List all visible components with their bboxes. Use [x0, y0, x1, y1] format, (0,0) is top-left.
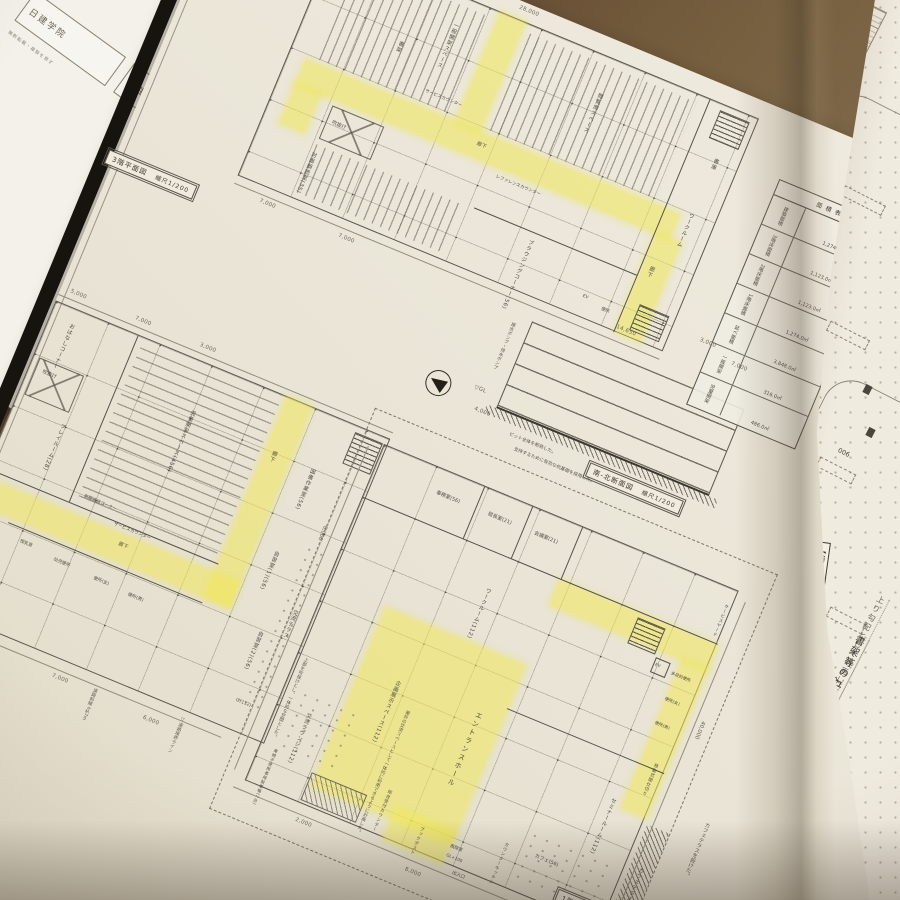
room-label: カウンターキッチン	[487, 841, 509, 884]
room-label: 館長室(21)	[487, 510, 513, 526]
wall	[511, 506, 534, 558]
room-label: プレイルーム(28)	[41, 422, 66, 471]
north-arrow-icon	[421, 366, 455, 400]
room-label: 書庫	[709, 157, 719, 171]
shelving-3f-c	[297, 144, 465, 253]
school-brand: 日建学院	[27, 5, 70, 41]
room-label: 会議室(21)	[533, 529, 559, 545]
wall	[463, 486, 486, 538]
plan-3f-title: 3階平面図 縮尺1/200	[104, 149, 198, 199]
section-scale: 縮尺1/200	[640, 489, 676, 509]
wall	[507, 708, 665, 774]
room-label: 事務室(56)	[435, 489, 461, 505]
annotation-road-line: ▽道路境界ライン	[166, 717, 186, 754]
wall	[474, 207, 637, 276]
room-label: セミナールーム(112)	[588, 797, 617, 855]
drawing-sheet: 一般開架スペース 書架 閲覧席スペース ワークルーム 書庫 吹抜け サービスカウ…	[0, 0, 900, 900]
school-brand-box: 日建学院	[14, 0, 126, 86]
wall	[561, 527, 584, 579]
room-label: 自習室(1)(56)	[258, 550, 280, 591]
room-label: 授乳室	[19, 538, 33, 549]
annotation-cafe-terrace: カフェテラスを設けた。	[681, 821, 711, 879]
dim: 7,000	[337, 233, 355, 245]
dim: 6,000	[142, 715, 160, 727]
room-label: 幼児便所	[53, 556, 72, 568]
gl-marker: ▽GL	[473, 384, 487, 394]
annotation-road-slant: 道路斜線 h≦7m	[80, 687, 99, 721]
room-label: 便所(女)	[92, 575, 110, 587]
room-label: 便所(男)	[127, 592, 145, 604]
section-note-pump: 揚水ポンプ・排水ポンプ	[491, 321, 516, 370]
gl-plus-100: GL+100	[446, 852, 464, 863]
room-label: ワークルーム(112)	[465, 587, 491, 640]
room-label: EV	[582, 294, 589, 301]
highlight-corridor-3f-stub	[280, 84, 320, 133]
stair-3f-b	[709, 110, 750, 150]
room-label: 風除室	[449, 843, 463, 854]
room-label: 便所	[600, 306, 610, 315]
room-label: 図書作業室(56)	[293, 467, 316, 510]
dim: 28,000	[518, 5, 540, 19]
plan-3f-scale: 縮尺1/200	[154, 174, 190, 194]
room-label: おはなしコーナー	[51, 322, 75, 369]
plan-3f: 一般開架スペース 書架 閲覧席スペース ワークルーム 書庫 吹抜け サービスカウ…	[238, 0, 759, 351]
dim: 7,000	[51, 673, 69, 685]
dashed-box	[826, 321, 870, 351]
plan-3f-title-text: 3階平面図	[111, 155, 149, 177]
